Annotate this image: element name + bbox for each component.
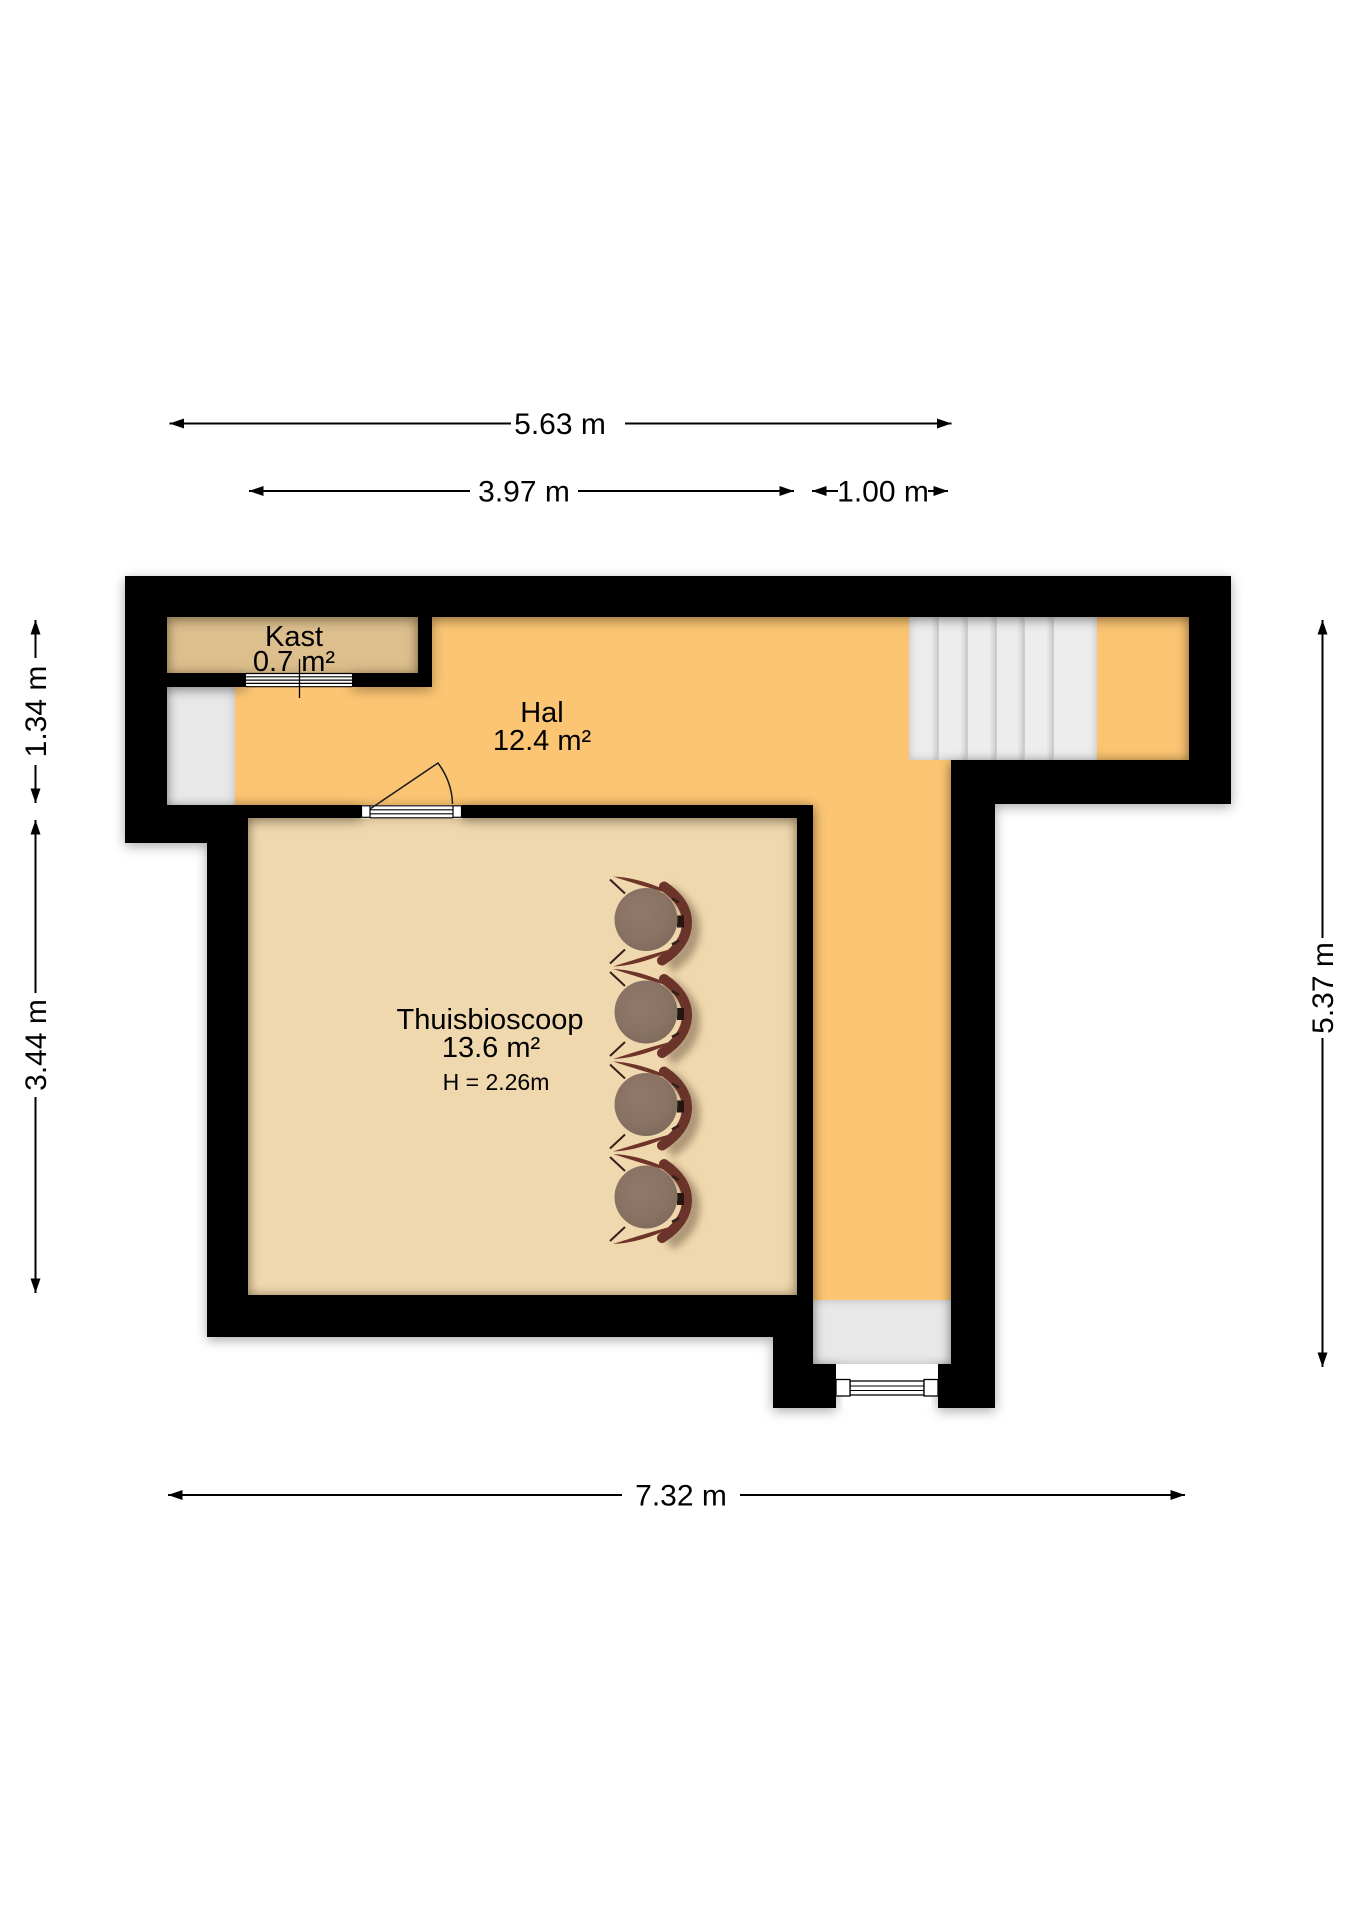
svg-text:12.4 m²: 12.4 m² [493, 725, 592, 757]
svg-text:1.34 m: 1.34 m [20, 666, 53, 758]
svg-text:3.44 m: 3.44 m [20, 999, 53, 1091]
svg-text:3.97 m: 3.97 m [478, 476, 570, 509]
svg-text:H = 2.26m: H = 2.26m [443, 1069, 550, 1095]
svg-text:5.63 m: 5.63 m [514, 408, 606, 441]
svg-text:13.6 m²: 13.6 m² [442, 1032, 541, 1064]
svg-text:5.37 m: 5.37 m [1307, 942, 1340, 1034]
svg-text:0.7 m²: 0.7 m² [253, 646, 336, 678]
svg-text:1.00 m: 1.00 m [837, 476, 929, 509]
svg-text:7.32 m: 7.32 m [635, 1480, 727, 1513]
